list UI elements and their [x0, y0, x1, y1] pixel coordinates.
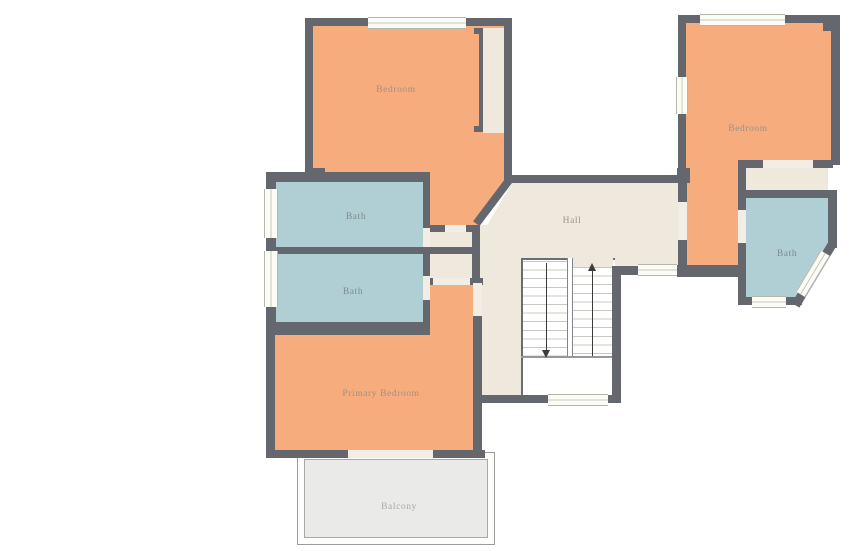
room-balcony	[304, 459, 488, 538]
window	[264, 189, 278, 238]
hall-corridor	[480, 225, 522, 398]
stairs-divider	[567, 258, 573, 357]
wall	[678, 113, 686, 183]
wall	[678, 183, 687, 202]
wall	[474, 126, 483, 132]
wall	[785, 15, 833, 23]
room-label-hall: Hall	[563, 216, 582, 226]
window	[700, 14, 785, 26]
room-bedroom-top-right	[686, 23, 833, 165]
wall	[823, 23, 831, 31]
floor-plan: Bedroom Bedroom Bath Bath Bath Hall Prim…	[0, 0, 858, 551]
wall	[612, 266, 621, 403]
window	[752, 296, 786, 308]
wall	[831, 15, 840, 165]
wall	[738, 243, 746, 305]
wall	[466, 225, 480, 232]
wall	[423, 254, 430, 276]
wall	[423, 300, 430, 332]
wall	[423, 182, 430, 228]
bedroom-top-right-leg	[686, 165, 740, 268]
balcony-door-opening	[348, 450, 433, 458]
room-label-bath-upper-left: Bath	[346, 212, 366, 222]
room-label-bath-right: Bath	[777, 249, 797, 259]
wall	[738, 190, 837, 198]
bath-vestibule-lower	[430, 254, 473, 279]
door-opening	[473, 283, 482, 316]
wall	[305, 18, 313, 176]
room-label-bedroom-top-right: Bedroom	[728, 124, 768, 134]
wall	[608, 395, 621, 403]
wall	[472, 225, 480, 283]
room-label-balcony: Balcony	[381, 502, 417, 512]
window	[368, 17, 466, 29]
bath-vestibule-upper	[430, 232, 473, 248]
window	[638, 264, 677, 276]
room-label-primary-bedroom: Primary Bedroom	[342, 389, 419, 399]
wall	[677, 265, 745, 277]
stairs-down-arrow-shaft	[546, 263, 547, 350]
wall	[305, 18, 368, 26]
window	[264, 251, 278, 307]
wall	[678, 15, 686, 77]
window	[548, 394, 608, 406]
wall	[479, 30, 483, 131]
door-opening	[738, 210, 746, 243]
stairs-up-arrow	[588, 263, 596, 271]
wall	[473, 395, 548, 403]
room-label-bath-lower-left: Bath	[343, 287, 363, 297]
wall	[266, 450, 348, 458]
wall	[813, 160, 833, 168]
closet-top-left	[483, 28, 504, 133]
door-opening	[763, 160, 813, 168]
door-opening	[433, 278, 470, 285]
stairs-up-arrow-shaft	[592, 271, 593, 356]
wall	[276, 247, 480, 254]
window	[676, 77, 688, 114]
wall	[504, 18, 512, 178]
wall	[738, 197, 746, 210]
wall	[678, 240, 687, 267]
wall	[474, 28, 483, 34]
wall	[266, 322, 430, 335]
door-opening	[423, 276, 430, 300]
door-opening	[678, 202, 687, 240]
stairs-landing-line	[521, 356, 613, 358]
wall	[473, 316, 482, 458]
stairs-down-arrow	[542, 350, 550, 358]
room-label-bedroom-top-left: Bedroom	[376, 85, 416, 95]
wall	[266, 332, 275, 458]
wall	[266, 172, 430, 182]
door-opening	[423, 228, 430, 247]
wall	[504, 175, 687, 183]
door-opening	[445, 225, 466, 232]
